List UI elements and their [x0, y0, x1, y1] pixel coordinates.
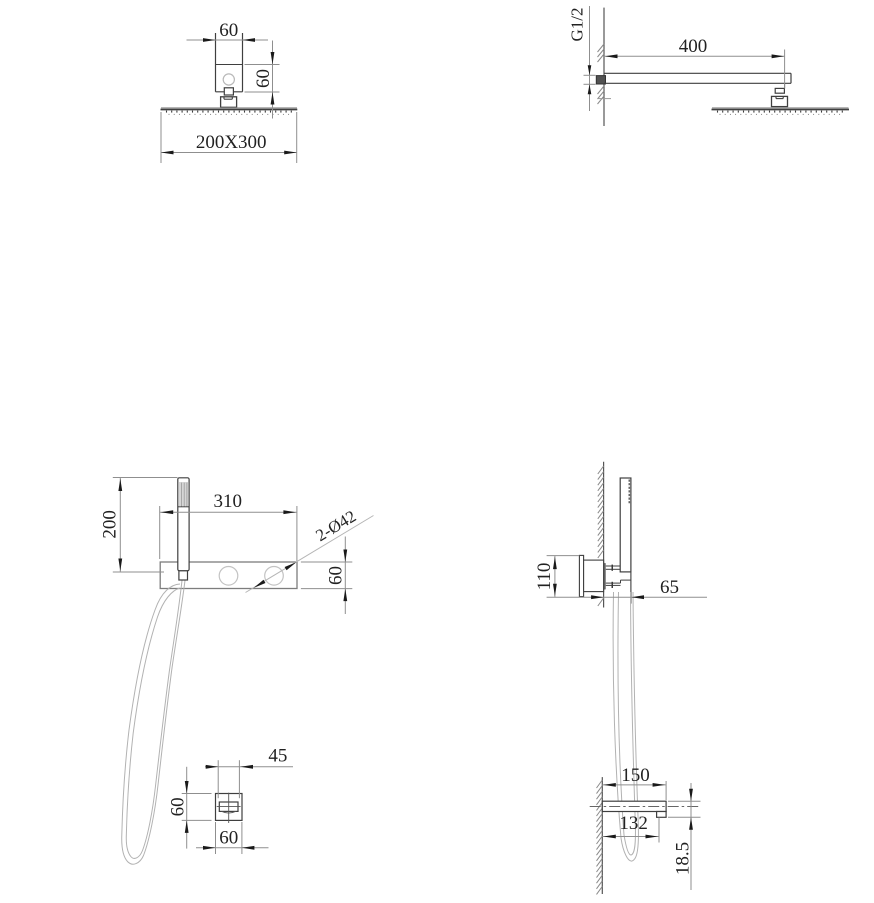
- svg-text:310: 310: [214, 491, 243, 512]
- svg-text:200X300: 200X300: [196, 132, 267, 153]
- svg-text:60: 60: [326, 566, 347, 585]
- svg-text:60: 60: [167, 797, 188, 816]
- svg-text:G1/2: G1/2: [568, 8, 587, 42]
- svg-text:200: 200: [99, 510, 120, 539]
- svg-text:150: 150: [621, 765, 650, 786]
- svg-text:60: 60: [253, 69, 274, 88]
- svg-text:132: 132: [619, 813, 648, 834]
- svg-text:110: 110: [534, 563, 555, 591]
- svg-text:400: 400: [679, 36, 708, 57]
- svg-text:65: 65: [660, 577, 679, 598]
- svg-text:45: 45: [268, 746, 287, 767]
- svg-text:18.5: 18.5: [672, 842, 693, 875]
- svg-text:60: 60: [219, 828, 238, 849]
- svg-text:60: 60: [219, 20, 238, 41]
